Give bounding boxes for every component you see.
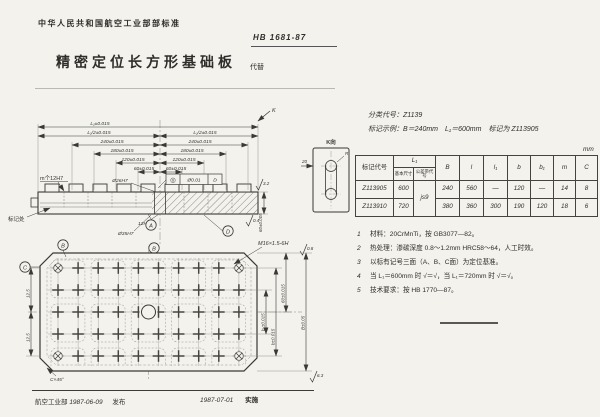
col-header-b: b [508,156,531,181]
m16-thread-label: M16×1.5-6H [258,241,288,247]
table-unit: mm [583,146,594,153]
dim-240-left: 240±0.015 [99,139,123,145]
roughness-check-icon [310,371,317,382]
dim-60-right: 60±0.015 [166,166,187,172]
issue-label: 发布 [112,399,125,406]
cell-m: 14 [554,181,576,199]
cell-b1: 120 [531,199,554,217]
dim-120-left: 120±0.015 [121,157,144,163]
standard-number-underline [251,46,337,47]
standard-org: 中华人民共和国航空工业部部标准 [38,18,181,29]
cell-m: 18 [554,199,576,217]
col-header-C: C [576,156,598,181]
note-number: 2 [357,245,370,253]
col-header-L1: L₁ [394,156,436,168]
standard-number: HB 1681-87 [253,33,306,42]
col-header-B: B [436,156,460,181]
roughness-0-4: 0.4 [253,218,260,223]
footer-rule [32,390,314,391]
datum-bubbles-side: A B D [146,214,233,253]
datum-d-label: D [226,229,230,235]
implement-line: 1987-07-01 实施 [200,394,258,404]
col-header-basic-size: 基本尺寸 [394,168,414,181]
cell-L1: 600 [394,181,414,199]
cell-tolerance: js9 [414,181,436,217]
mark-spot-label: 标记处 [8,215,25,223]
dim-lines [38,127,258,172]
m-holes-label: m个12H7 [40,175,63,182]
section-hatch [152,193,257,214]
note-item: 5 技术要求：按 HB 1770—87。 [357,287,595,295]
fcf-value: Ø0.01 [186,178,201,184]
note-text: 以标有记号三面（A、B、C面）为定位基准。 [370,259,502,267]
standard-sheet: L₁±0.015 L₁/2±0.015 L₁/2±0.015 240±0.015… [0,0,600,417]
cell-B: 240 [436,181,460,199]
concentricity-icon: ◎ [170,177,176,184]
dim-12-5-upper: 12.5 [26,289,31,298]
datum-b-label-plan: B [61,243,65,249]
note-text: 技术要求：按 HB 1770—87。 [370,287,458,295]
cell-code: Z113910 [356,199,394,217]
fcf-datum: D [213,178,217,184]
end-pin [31,198,38,207]
cell-l: 560 [460,181,484,199]
roughness-0-8: 0.8 [307,246,314,251]
plate-teeth [45,184,251,192]
note-item: 3 以标有记号三面（A、B、C面）为定位基准。 [357,259,595,267]
k-view-title: K向 [326,138,336,146]
dim-B: B±0.05 [301,315,306,330]
issue-org: 航空工业部 [35,399,68,406]
cell-C: 6 [576,199,598,217]
page-title: 精密定位长方形基础板 [56,52,236,72]
roughness-check-icon [256,179,263,190]
k-arrow-label: K [272,108,276,114]
roughness-3-2: 3.2 [263,181,270,186]
cell-B: 380 [436,199,460,217]
cell-b1: — [531,181,554,199]
cell-b: 190 [508,199,531,217]
dim-12-5-lower: 12.5 [26,333,31,342]
table-row: Z113910 720 380 360 300 190 120 18 6 [356,199,598,217]
cell-l1: 300 [484,199,508,217]
note-text: 当 L₁＝600mm 时 √＝√，当 L₁＝720mm 时 √＝√。 [370,273,517,281]
col-header-tolerance: 公差带代号 [414,168,436,181]
note-number: 3 [357,259,370,267]
dim-240-right: 240±0.015 [187,139,211,145]
note-item: 4 当 L₁＝600mm 时 √＝√，当 L₁＝720mm 时 √＝√。 [357,273,595,281]
cell-code: Z113905 [356,181,394,199]
dim-180-right: 180±0.015 [180,148,203,154]
col-header-l1: l₁ [484,156,508,181]
cell-l1: — [484,181,508,199]
notes-list: 1 材料：20CrMnTi，按 GB3077—82。 2 热处理：渗碳深度 0.… [357,231,595,301]
note-item: 2 热处理：渗碳深度 0.8～1.2mm HRC58～64，人工时效。 [357,245,595,253]
cell-l: 360 [460,199,484,217]
col-header-code: 标记代号 [356,156,394,181]
cell-L1: 720 [394,199,414,217]
dim-L1: L₁±0.015 [90,121,109,127]
notes-rule [440,322,498,324]
note-text: 材料：20CrMnTi，按 GB3077—82。 [370,231,478,239]
note-text: 热处理：渗碳深度 0.8～1.2mm HRC58～64，人工时效。 [370,245,537,253]
hole-26-label: Ø26H7 [111,178,128,184]
note-item: 1 材料：20CrMnTi，按 GB3077—82。 [357,231,595,239]
roughness-6-3: 6.3 [317,373,324,378]
dim-60-left: 60±0.015 [134,166,155,172]
dim-b1: b₁±0.015 [261,313,266,331]
cell-C: 8 [576,181,598,199]
issue-line: 航空工业部 1987-06-09 发布 [35,396,125,406]
implement-date: 1987-07-01 [200,397,233,404]
side-dimensions: L₁±0.015 L₁/2±0.015 L₁/2±0.015 240±0.015… [8,108,276,237]
hole-35-label: Ø35H7 [117,231,134,237]
table-row: Z113905 600 js9 240 560 — 120 — 14 8 [356,181,598,199]
col-header-b1: b₁ [531,156,554,181]
k-view: K向 R 20 [301,138,349,212]
k-radius-label: R [345,151,349,156]
issue-date: 1987-06-09 [69,399,102,406]
marking-example: 标记示例：B＝240mm L₁＝600mm 标记为 Z113905 [368,124,539,134]
dimension-table: 标记代号 L₁ B l l₁ b b₁ m C 基本尺寸 公差带代号 Z1139… [355,155,598,217]
note-number: 5 [357,287,370,295]
replaces-label: 代替 [250,62,264,72]
dim-120-right: 120±0.015 [172,157,195,163]
dim-b: b±0.015 [271,328,276,345]
classification-code: 分类代号：Z1139 [368,110,422,120]
col-header-l: l [460,156,484,181]
dim-60: 60±0.015 [281,284,286,303]
note-number: 1 [357,231,370,239]
chamfer-label: C×45° [50,377,64,383]
header-rule [35,88,335,89]
roughness-check-icon [246,215,253,226]
witness-lines [38,124,258,192]
plan-view: M16×1.5-6H 0.8 b₁±0.015 b±0.015 60±0.015… [20,240,324,383]
col-header-m: m [554,156,576,181]
note-number: 4 [357,273,370,281]
dim-L1-half-right: L₁/2±0.015 [193,130,217,136]
implement-label: 实施 [245,397,258,404]
k-dim-20: 20 [301,159,308,164]
k-direction-arrow [258,111,270,121]
cell-b: 120 [508,181,531,199]
datum-a-label: A [148,223,153,229]
plan-witness-lines [249,253,312,371]
dim-180-left: 180±0.015 [110,148,133,154]
dim-L1-half-left: L₁/2±0.015 [87,130,111,136]
datum-b-label: B [152,246,156,252]
